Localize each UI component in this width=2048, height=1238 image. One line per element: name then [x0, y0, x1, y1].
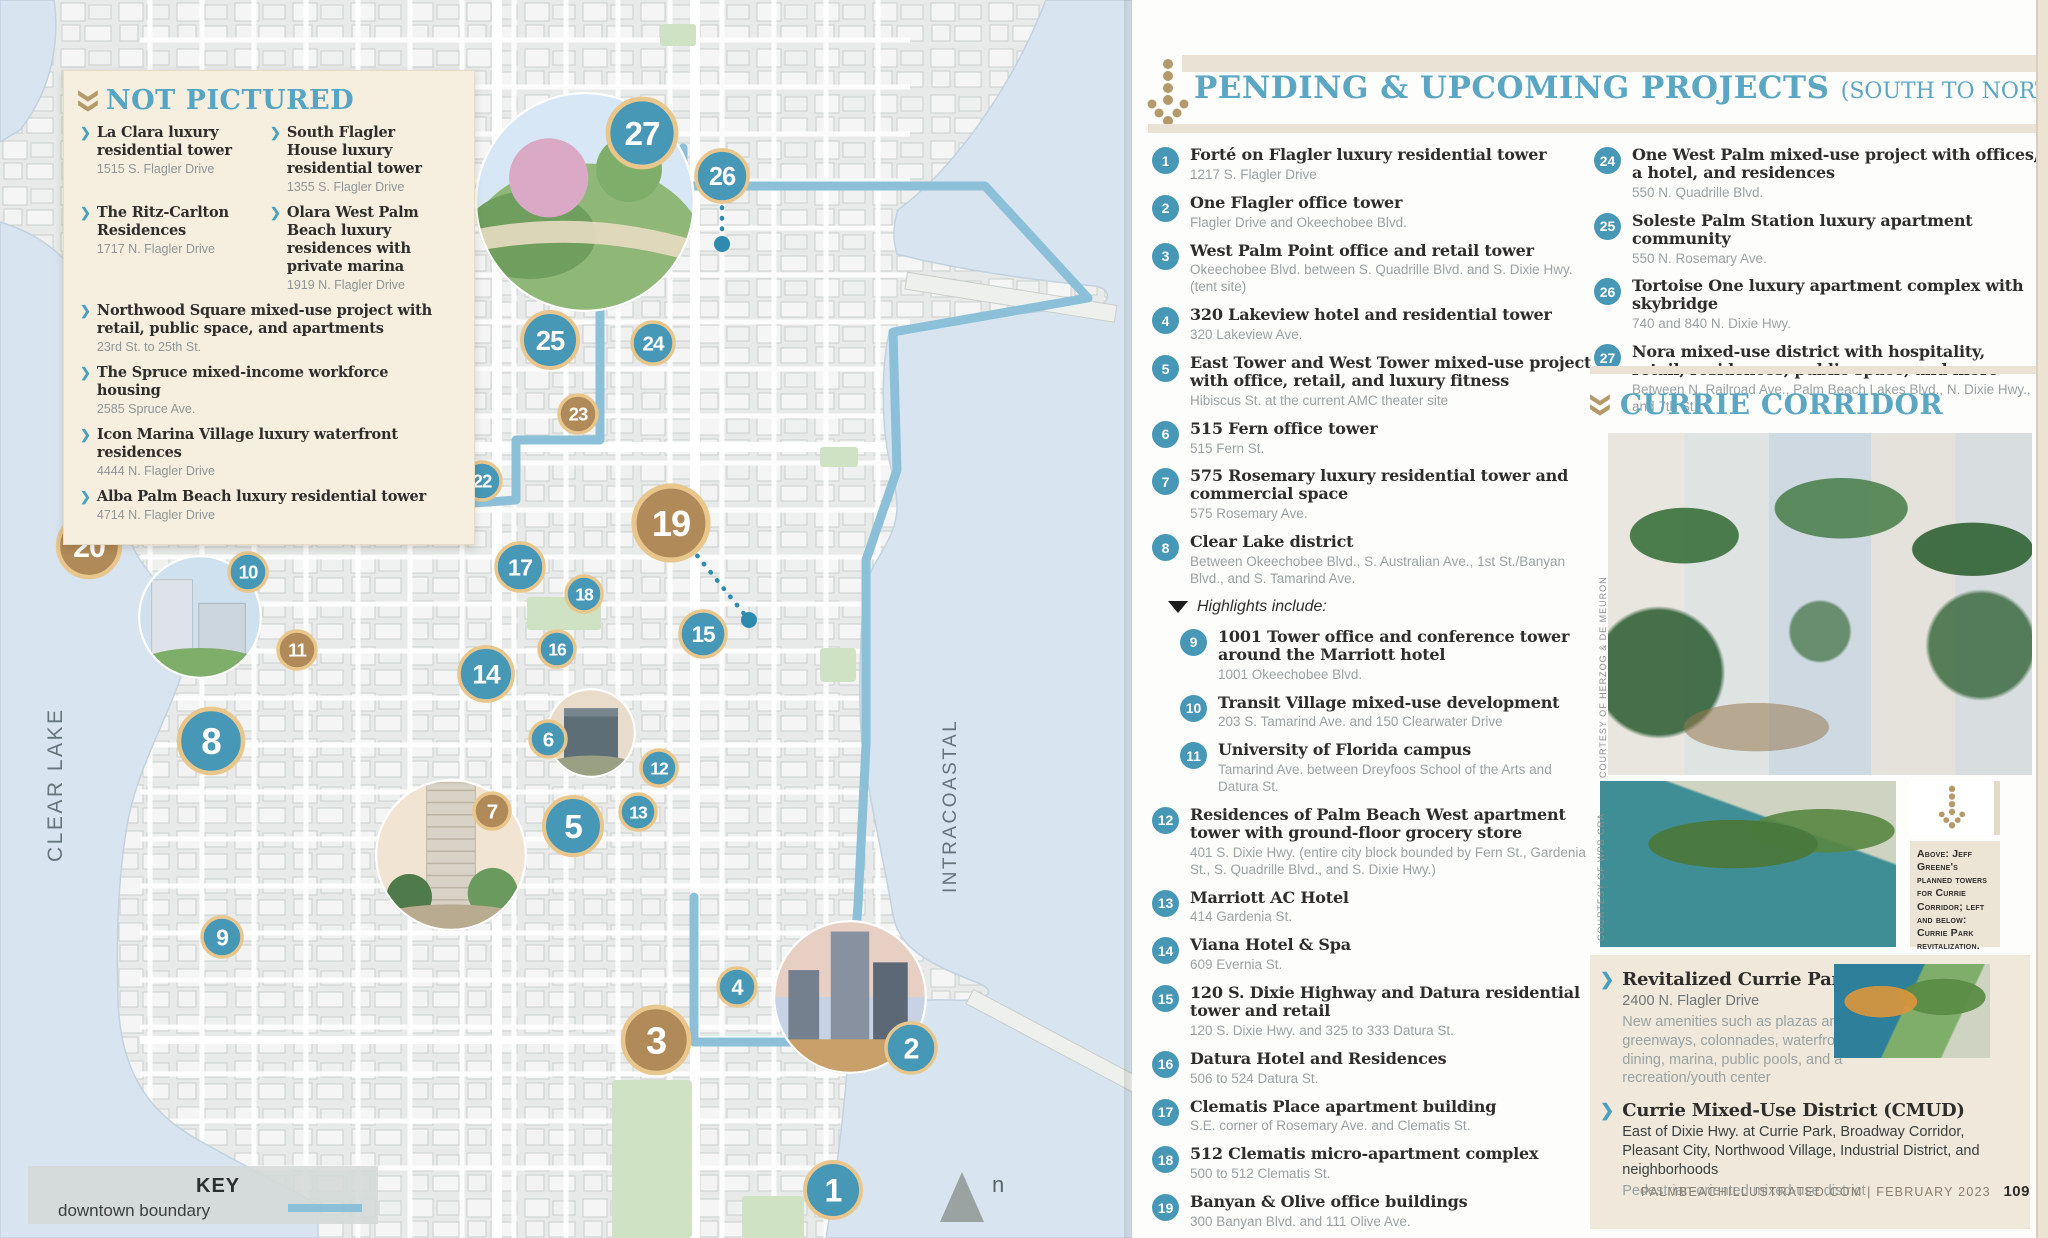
chevron-bullet-icon: ❯: [1600, 1100, 1614, 1200]
project-address: S.E. corner of Rosemary Ave. and Clemati…: [1190, 1118, 1496, 1135]
project-number-badge: 13: [1152, 890, 1179, 917]
project-address: Tamarind Ave. between Dreyfoos School of…: [1218, 762, 1594, 796]
map-marker-15[interactable]: 15: [680, 611, 726, 657]
map-marker-2[interactable]: 2: [886, 1023, 936, 1073]
project-address: 414 Gardenia St.: [1190, 909, 1349, 926]
not-pictured-item: ❯ Icon Marina Village luxury waterfront …: [80, 426, 456, 479]
project-address: Okeechobee Blvd. between S. Quadrille Bl…: [1190, 262, 1594, 296]
map-marker-18[interactable]: 18: [566, 576, 602, 612]
svg-text:3: 3: [646, 1021, 666, 1063]
svg-text:12: 12: [650, 758, 669, 778]
project-name: Soleste Palm Station luxury apartment co…: [1632, 212, 2042, 248]
map-marker-27[interactable]: 27: [608, 99, 676, 167]
downtown-map: 1234567891011121314151617181920212223242…: [0, 0, 1132, 1238]
project-list-item: 24 One West Palm mixed-use project with …: [1594, 146, 2042, 202]
project-number-badge: 8: [1152, 534, 1179, 561]
project-number-badge: 14: [1152, 937, 1179, 964]
svg-text:13: 13: [629, 802, 648, 822]
svg-text:27: 27: [624, 116, 660, 153]
chevron-bullet-icon: ❯: [80, 364, 91, 417]
project-address: 500 to 512 Clematis St.: [1190, 1166, 1538, 1183]
project-name: Olara West Palm Beach luxury residences …: [287, 204, 419, 275]
project-address: 1217 S. Flagler Drive: [1190, 167, 1546, 184]
key-title: KEY: [196, 1175, 240, 1197]
project-name: Tortoise One luxury apartment complex wi…: [1632, 277, 2042, 313]
project-name: Alba Palm Beach luxury residential tower: [97, 488, 426, 505]
not-pictured-item: ❯ Alba Palm Beach luxury residential tow…: [80, 488, 456, 523]
project-number-badge: 4: [1152, 307, 1179, 334]
project-address: 1001 Okeechobee Blvd.: [1218, 667, 1594, 684]
project-name: The Ritz-Carlton Residences: [97, 204, 229, 239]
map-marker-7[interactable]: 7: [474, 793, 510, 829]
not-pictured-item: ❯ South Flagler House luxury residential…: [270, 124, 450, 195]
project-name: South Flagler House luxury residential t…: [287, 124, 422, 177]
projects-page: PENDING & UPCOMING PROJECTS (SOUTH TO NO…: [1132, 0, 2048, 1238]
page-edge-strip: [2036, 0, 2048, 1238]
project-list-item: 18 512 Clematis micro-apartment complex …: [1152, 1145, 1594, 1183]
project-list-item: 10 Transit Village mixed-use development…: [1180, 694, 1594, 732]
double-chevron-icon: ❯❯: [80, 91, 96, 111]
svg-text:23: 23: [569, 404, 588, 425]
project-list-item: 19 Banyan & Olive office buildings 300 B…: [1152, 1193, 1594, 1231]
project-list-item: 6 515 Fern office tower 515 Fern St.: [1152, 420, 1594, 458]
map-marker-26[interactable]: 26: [696, 150, 748, 202]
svg-text:2: 2: [904, 1033, 919, 1065]
svg-text:6: 6: [543, 728, 554, 751]
svg-text:16: 16: [548, 639, 567, 659]
not-pictured-item: ❯ The Ritz-Carlton Residences 1717 N. Fl…: [80, 204, 260, 293]
map-marker-24[interactable]: 24: [632, 322, 674, 364]
svg-text:26: 26: [709, 163, 736, 191]
highlights-row: Highlights include:: [1168, 598, 1594, 616]
project-list-item: 4 320 Lakeview hotel and residential tow…: [1152, 306, 1594, 344]
project-number-badge: 5: [1152, 355, 1179, 382]
chevron-bullet-icon: ❯: [80, 488, 91, 523]
svg-text:17: 17: [508, 554, 533, 580]
map-marker-14[interactable]: 14: [459, 647, 513, 701]
svg-text:19: 19: [652, 503, 690, 544]
projects-title: PENDING & UPCOMING PROJECTS: [1194, 70, 1829, 106]
chevron-bullet-icon: ❯: [80, 426, 91, 479]
project-name: Viana Hotel & Spa: [1190, 936, 1351, 954]
projects-header: PENDING & UPCOMING PROJECTS (SOUTH TO NO…: [1194, 70, 2048, 106]
project-list-item: 14 Viana Hotel & Spa 609 Evernia St.: [1152, 936, 1594, 974]
project-list-item: 11 University of Florida campus Tamarind…: [1180, 741, 1594, 796]
project-list-item: 1 Forté on Flagler luxury residential to…: [1152, 146, 1594, 184]
project-name: Banyan & Olive office buildings: [1190, 1193, 1467, 1211]
project-list-item: 25 Soleste Palm Station luxury apartment…: [1594, 212, 2042, 268]
project-address: 23rd St. to 25th St.: [97, 340, 456, 355]
map-marker-1[interactable]: 1: [805, 1162, 861, 1218]
project-name: 320 Lakeview hotel and residential tower: [1190, 306, 1552, 324]
image-credit-aerial: COURTESY OF WPB CRA: [1596, 813, 1606, 941]
highlights-label: Highlights include:: [1197, 598, 1327, 616]
project-address: 4714 N. Flagler Drive: [97, 508, 426, 523]
project-number-badge: 10: [1180, 695, 1207, 722]
project-list-item: 3 West Palm Point office and retail towe…: [1152, 242, 1594, 297]
project-address: 506 to 524 Datura St.: [1190, 1071, 1447, 1088]
dotted-arrow-icon-box: [1910, 781, 2000, 835]
project-description: New amenities such as plazas and greenwa…: [1622, 1013, 1860, 1088]
map-marker-6[interactable]: 6: [530, 721, 566, 757]
project-number-badge: 9: [1180, 629, 1207, 656]
project-name: 512 Clematis micro-apartment complex: [1190, 1145, 1538, 1163]
currie-towers-render-image: [1608, 433, 2032, 775]
project-address: Hibiscus St. at the current AMC theater …: [1190, 393, 1594, 410]
currie-corridor-section: ❯❯ CURRIE CORRIDOR COURTESY OF HERZOG & …: [1590, 366, 2042, 1229]
project-list-item: 9 1001 Tower office and conference tower…: [1180, 628, 1594, 684]
chevron-bullet-icon: ❯: [80, 204, 91, 293]
svg-text:14: 14: [472, 660, 501, 690]
project-address: 515 Fern St.: [1190, 441, 1378, 458]
project-name: Revitalized Currie Park: [1622, 969, 1860, 990]
projects-column-left: 1 Forté on Flagler luxury residential to…: [1152, 146, 1594, 1238]
project-address: 401 S. Dixie Hwy. (entire city block bou…: [1190, 845, 1594, 879]
project-name: Clematis Place apartment building: [1190, 1098, 1496, 1116]
map-marker-17[interactable]: 17: [496, 543, 544, 591]
page-footer: PALMBEACHILLUSTRATED.COM | FEBRUARY 2023…: [1641, 1183, 2030, 1200]
triangle-down-icon: [1168, 601, 1188, 613]
project-address: 740 and 840 N. Dixie Hwy.: [1632, 316, 2042, 333]
project-number-badge: 18: [1152, 1146, 1179, 1173]
project-number-badge: 17: [1152, 1099, 1179, 1126]
map-marker-10[interactable]: 10: [229, 553, 267, 591]
project-number-badge: 25: [1594, 213, 1621, 240]
not-pictured-title: NOT PICTURED: [106, 85, 354, 116]
svg-text:25: 25: [536, 325, 565, 356]
project-list-item: 12 Residences of Palm Beach West apartme…: [1152, 806, 1594, 879]
footer-site: PALMBEACHILLUSTRATED.COM: [1641, 1185, 1862, 1199]
project-name: Forté on Flagler luxury residential towe…: [1190, 146, 1546, 164]
project-number-badge: 15: [1152, 985, 1179, 1012]
key-item-label: downtown boundary: [58, 1201, 211, 1220]
chevron-bullet-icon: ❯: [80, 124, 91, 195]
project-number-badge: 2: [1152, 195, 1179, 222]
key-boundary-swatch: [288, 1204, 362, 1212]
project-address: 203 S. Tamarind Ave. and 150 Clearwater …: [1218, 714, 1559, 731]
svg-text:24: 24: [643, 332, 665, 355]
map-marker-8[interactable]: 8: [179, 709, 243, 773]
project-list-item: 8 Clear Lake district Between Okeechobee…: [1152, 533, 1594, 588]
svg-text:7: 7: [487, 800, 498, 823]
project-address: East of Dixie Hwy. at Currie Park, Broad…: [1622, 1123, 2016, 1180]
project-number-badge: 19: [1152, 1194, 1179, 1221]
svg-text:15: 15: [691, 622, 715, 647]
chevron-bullet-icon: ❯: [80, 302, 91, 355]
image-credit-main: COURTESY OF HERZOG & DE MEURON: [1598, 576, 1608, 778]
project-address: Between Okeechobee Blvd., S. Australian …: [1190, 554, 1594, 588]
intracoastal-label: INTRACOASTAL: [940, 719, 961, 893]
footer-separator: |: [1867, 1185, 1871, 1199]
project-number-badge: 11: [1180, 742, 1207, 769]
project-list-item: 7 575 Rosemary luxury residential tower …: [1152, 467, 1594, 523]
svg-text:4: 4: [731, 975, 744, 1000]
project-address: 300 Banyan Blvd. and 111 Olive Ave.: [1190, 1214, 1467, 1231]
project-number-badge: 16: [1152, 1051, 1179, 1078]
project-list-item: 13 Marriott AC Hotel 414 Gardenia St.: [1152, 889, 1594, 927]
project-name: West Palm Point office and retail tower: [1190, 242, 1594, 260]
map-marker-16[interactable]: 16: [539, 631, 575, 667]
project-list-item: 17 Clematis Place apartment building S.E…: [1152, 1098, 1594, 1136]
project-name: 1001 Tower office and conference tower a…: [1218, 628, 1594, 664]
currie-top-rule: [1590, 366, 2036, 374]
footer-issue: FEBRUARY 2023: [1876, 1185, 1991, 1199]
project-name: 120 S. Dixie Highway and Datura resident…: [1190, 984, 1594, 1020]
project-number-badge: 12: [1152, 807, 1179, 834]
svg-text:11: 11: [288, 640, 306, 661]
project-name: Residences of Palm Beach West apartment …: [1190, 806, 1594, 842]
project-address: 550 N. Quadrille Blvd.: [1632, 185, 2042, 202]
not-pictured-box: ❯❯ NOT PICTURED ❯ La Clara luxury reside…: [63, 70, 475, 545]
not-pictured-item: ❯ La Clara luxury residential tower 1515…: [80, 124, 260, 195]
map-marker-5[interactable]: 5: [544, 797, 602, 855]
project-name: East Tower and West Tower mixed-use proj…: [1190, 354, 1594, 390]
project-number-badge: 3: [1152, 243, 1179, 270]
projects-subtitle: (SOUTH TO NORTH): [1841, 79, 2048, 104]
chevron-bullet-icon: ❯: [270, 204, 281, 293]
currie-park-plan-image: [1834, 964, 1990, 1058]
project-number-badge: 6: [1152, 421, 1179, 448]
map-marker-23[interactable]: 23: [559, 395, 597, 433]
project-name: Northwood Square mixed-use project with …: [97, 302, 432, 337]
chevron-bullet-icon: ❯: [270, 124, 281, 195]
project-list-item: 15 120 S. Dixie Highway and Datura resid…: [1152, 984, 1594, 1040]
currie-title: CURRIE CORRIDOR: [1620, 388, 1943, 421]
project-name: La Clara luxury residential tower: [97, 124, 232, 159]
svg-text:10: 10: [239, 562, 258, 583]
map-marker-3[interactable]: 3: [623, 1007, 689, 1073]
project-name: Datura Hotel and Residences: [1190, 1050, 1447, 1068]
map-marker-9[interactable]: 9: [202, 917, 242, 957]
footer-page-number: 109: [2003, 1183, 2030, 1200]
project-address: 4444 N. Flagler Drive: [97, 464, 456, 479]
project-name: 575 Rosemary luxury residential tower an…: [1190, 467, 1594, 503]
currie-caption: Above: Jeff Greene's planned towers for …: [1917, 848, 1993, 953]
project-address: 1515 S. Flagler Drive: [97, 162, 260, 177]
header-bottom-rule: [1148, 124, 2040, 133]
map-marker-4[interactable]: 4: [718, 968, 756, 1006]
not-pictured-item: ❯ The Spruce mixed-income workforce hous…: [80, 364, 456, 417]
project-name: Currie Mixed-Use District (CMUD): [1622, 1100, 2016, 1121]
map-marker-19[interactable]: 19: [634, 486, 708, 560]
project-address: 1919 N. Flagler Drive: [287, 278, 450, 293]
currie-park-aerial-image: [1600, 781, 1896, 947]
chevron-bullet-icon: ❯: [1600, 969, 1614, 1088]
project-address: 2400 N. Flagler Drive: [1622, 992, 1860, 1011]
not-pictured-item: ❯ Northwood Square mixed-use project wit…: [80, 302, 456, 355]
project-address: 550 N. Rosemary Ave.: [1632, 251, 2042, 268]
north-label: n: [992, 1172, 1004, 1197]
dotted-down-arrow-icon: [1935, 785, 1969, 831]
map-marker-11[interactable]: 11: [278, 631, 316, 669]
project-number-badge: 1: [1152, 147, 1179, 174]
project-list-item: 5 East Tower and West Tower mixed-use pr…: [1152, 354, 1594, 410]
svg-text:5: 5: [564, 809, 582, 846]
project-number-badge: 26: [1594, 278, 1621, 305]
clear-lake-label: CLEAR LAKE: [44, 707, 67, 862]
svg-text:18: 18: [575, 584, 594, 604]
project-address: 1355 S. Flagler Drive: [287, 180, 450, 195]
project-address: 1717 N. Flagler Drive: [97, 242, 260, 257]
project-name: The Spruce mixed-income workforce housin…: [97, 364, 388, 399]
project-name: University of Florida campus: [1218, 741, 1594, 759]
double-chevron-icon: ❯❯: [1592, 395, 1608, 415]
project-name: One Flagler office tower: [1190, 194, 1407, 212]
svg-text:22: 22: [473, 471, 492, 492]
project-name: One West Palm mixed-use project with off…: [1632, 146, 2042, 182]
map-marker-13[interactable]: 13: [620, 794, 656, 830]
project-name: Transit Village mixed-use development: [1218, 694, 1559, 712]
project-list-item: 26 Tortoise One luxury apartment complex…: [1594, 277, 2042, 333]
project-number-badge: 24: [1594, 147, 1621, 174]
project-list-item: 2 One Flagler office tower Flagler Drive…: [1152, 194, 1594, 232]
svg-text:1: 1: [825, 1173, 842, 1209]
project-list-item: 16 Datura Hotel and Residences 506 to 52…: [1152, 1050, 1594, 1088]
project-name: Icon Marina Village luxury waterfront re…: [97, 426, 398, 461]
project-address: 609 Evernia St.: [1190, 957, 1351, 974]
project-address: 575 Rosemary Ave.: [1190, 506, 1594, 523]
project-address: 2585 Spruce Ave.: [97, 402, 456, 417]
project-name: Marriott AC Hotel: [1190, 889, 1349, 907]
svg-text:8: 8: [201, 721, 221, 762]
not-pictured-item: ❯ Olara West Palm Beach luxury residence…: [270, 204, 450, 293]
magazine-spread: 1234567891011121314151617181920212223242…: [0, 0, 2048, 1238]
project-name: 515 Fern office tower: [1190, 420, 1378, 438]
map-marker-25[interactable]: 25: [522, 312, 578, 368]
project-address: 320 Lakeview Ave.: [1190, 327, 1552, 344]
project-name: Clear Lake district: [1190, 533, 1594, 551]
map-marker-12[interactable]: 12: [641, 750, 677, 786]
currie-caption-box: Above: Jeff Greene's planned towers for …: [1910, 841, 2000, 947]
project-address: 120 S. Dixie Hwy. and 325 to 333 Datura …: [1190, 1023, 1594, 1040]
not-pictured-list: ❯ La Clara luxury residential tower 1515…: [80, 124, 456, 532]
project-address: Flagler Drive and Okeechobee Blvd.: [1190, 215, 1407, 232]
svg-text:9: 9: [216, 924, 228, 950]
project-number-badge: 7: [1152, 468, 1179, 495]
